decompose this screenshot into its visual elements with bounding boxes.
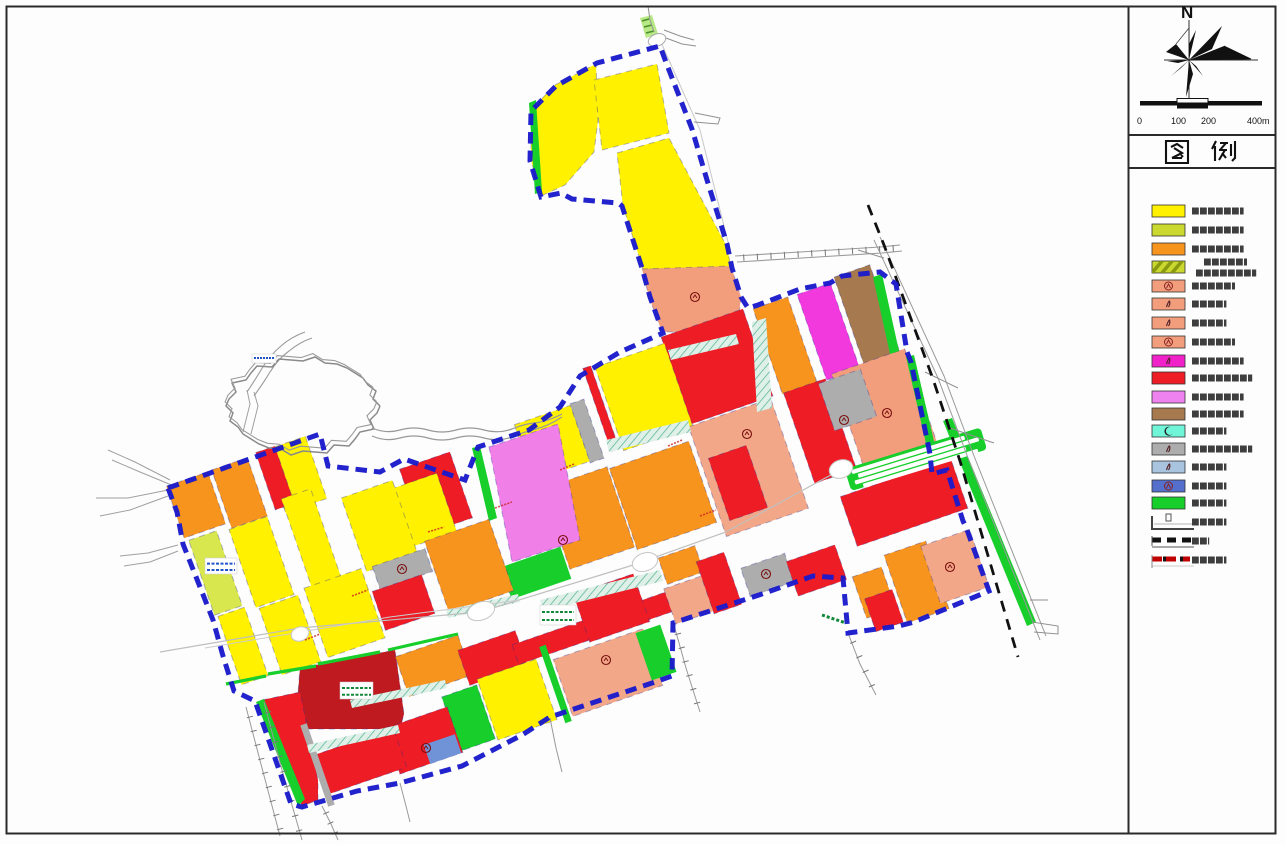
svg-text:100: 100 (1171, 116, 1186, 126)
svg-text:N: N (1181, 3, 1193, 22)
svg-text:400m: 400m (1247, 116, 1270, 126)
svg-text:200: 200 (1201, 116, 1216, 126)
svg-text:0: 0 (1137, 116, 1142, 126)
